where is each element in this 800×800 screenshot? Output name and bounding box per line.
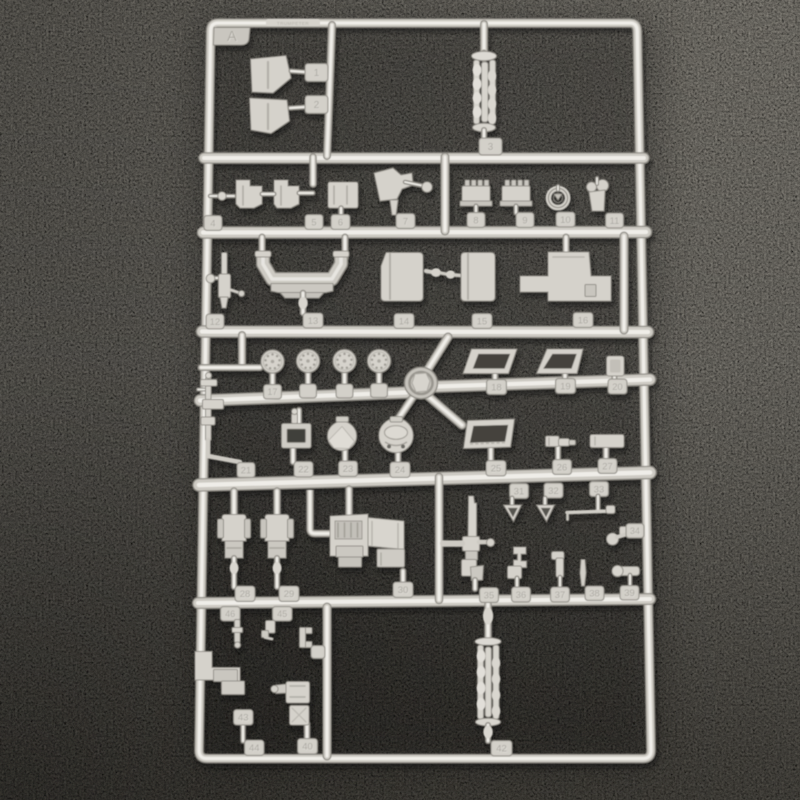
- svg-text:29: 29: [284, 589, 295, 600]
- svg-text:4: 4: [210, 218, 215, 229]
- svg-text:14: 14: [399, 316, 410, 327]
- svg-text:25: 25: [491, 464, 502, 475]
- svg-text:17: 17: [267, 387, 277, 397]
- svg-text:11: 11: [610, 216, 620, 227]
- svg-text:6: 6: [338, 217, 343, 228]
- svg-text:18: 18: [491, 382, 502, 393]
- svg-text:TRUMPETER: TRUMPETER: [277, 21, 309, 26]
- svg-text:35: 35: [484, 590, 495, 601]
- svg-text:31: 31: [514, 486, 525, 497]
- svg-text:27: 27: [602, 461, 613, 472]
- svg-text:28: 28: [240, 589, 251, 600]
- svg-text:46: 46: [225, 609, 235, 619]
- svg-text:30: 30: [398, 585, 409, 596]
- svg-text:21: 21: [241, 465, 252, 476]
- svg-text:26: 26: [557, 462, 568, 473]
- svg-text:8: 8: [473, 215, 478, 226]
- svg-text:13: 13: [308, 316, 319, 327]
- svg-text:2: 2: [314, 100, 320, 111]
- svg-text:40: 40: [302, 742, 313, 753]
- svg-text:39: 39: [624, 588, 635, 599]
- svg-text:10: 10: [560, 215, 571, 226]
- svg-text:36: 36: [516, 590, 527, 601]
- svg-text:7: 7: [403, 216, 408, 227]
- svg-text:9: 9: [522, 215, 527, 226]
- svg-text:19: 19: [560, 381, 571, 392]
- svg-text:44: 44: [249, 743, 260, 754]
- svg-text:37: 37: [555, 590, 566, 601]
- svg-text:16: 16: [578, 315, 589, 326]
- svg-text:42: 42: [496, 744, 507, 755]
- svg-text:A: A: [227, 29, 237, 45]
- svg-text:34: 34: [630, 526, 640, 536]
- svg-text:3: 3: [488, 142, 494, 153]
- svg-text:45: 45: [277, 609, 287, 619]
- svg-text:15: 15: [477, 316, 488, 327]
- svg-text:43: 43: [238, 713, 249, 724]
- svg-text:32: 32: [548, 486, 559, 497]
- svg-text:5: 5: [311, 217, 316, 228]
- svg-text:24: 24: [395, 465, 406, 476]
- svg-text:22: 22: [298, 465, 309, 476]
- svg-text:38: 38: [589, 589, 600, 600]
- svg-text:20: 20: [612, 382, 623, 393]
- svg-text:1: 1: [314, 68, 320, 79]
- svg-text:12: 12: [210, 317, 221, 328]
- svg-text:23: 23: [343, 464, 354, 475]
